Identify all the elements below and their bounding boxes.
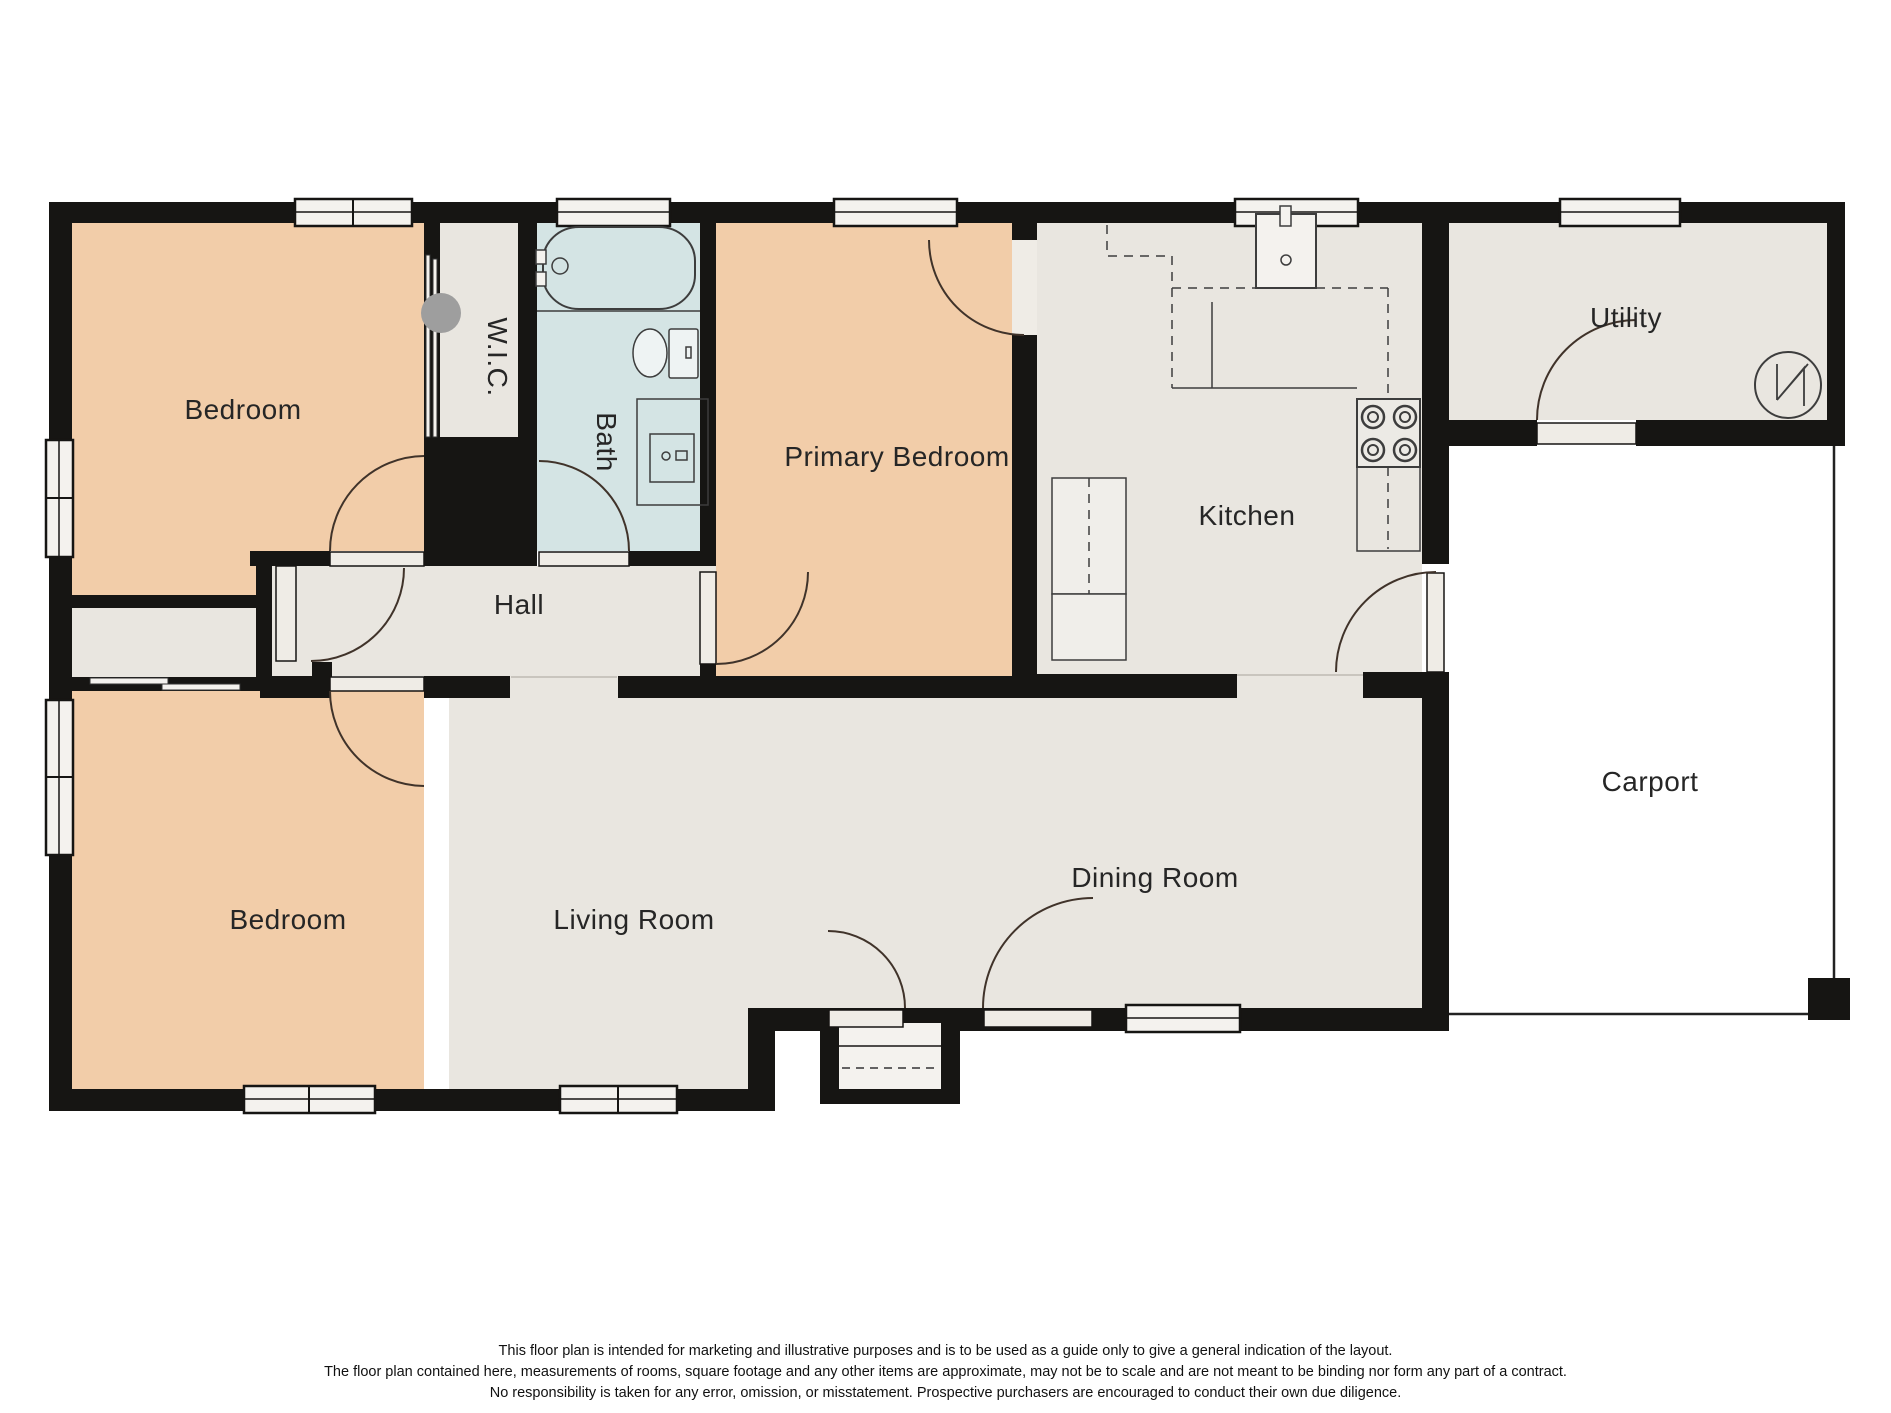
wall-mass-below-wic xyxy=(424,437,537,566)
bathtub-faucet-icon xyxy=(536,272,546,286)
room-label-kitchen: Kitchen xyxy=(1199,500,1296,532)
room-label-wic: W.I.C. xyxy=(481,317,513,396)
bedroom-bottom-door xyxy=(330,677,424,691)
wall-utility-bottom-a xyxy=(1427,420,1537,446)
wall-closet-right xyxy=(256,551,272,691)
room-label-living-room: Living Room xyxy=(553,904,714,936)
dining-room-exterior-door xyxy=(984,1010,1092,1027)
wall-utility-bottom-b xyxy=(1636,420,1845,446)
wall-primary-kitchen-top xyxy=(1012,202,1037,240)
bedroom-top-floor-ext xyxy=(72,551,260,595)
closet-sliding-door xyxy=(162,684,240,690)
window xyxy=(295,199,412,226)
floor-plan-drawing xyxy=(0,0,1891,1413)
window xyxy=(46,440,73,557)
wall-primary-kitchen xyxy=(1012,335,1037,698)
disclaimer-line-1: This floor plan is intended for marketin… xyxy=(0,1341,1891,1362)
wic-sliding-door xyxy=(426,255,430,437)
window xyxy=(244,1086,375,1113)
wall-primary-door-south xyxy=(700,664,716,698)
stove-icon xyxy=(1357,399,1420,467)
wall-bath-primary xyxy=(700,202,716,566)
room-label-bedroom-top: Bedroom xyxy=(184,394,301,426)
window xyxy=(557,199,670,226)
living-room-floor xyxy=(449,698,775,1089)
porch-closet-floor xyxy=(838,1022,942,1090)
primary-bedroom-door xyxy=(700,572,716,664)
bedroom-top-door xyxy=(330,552,424,566)
room-label-dining-room: Dining Room xyxy=(1071,862,1238,894)
wic-sliding-door xyxy=(433,259,437,437)
wall-kitchen-dining-a xyxy=(1037,674,1237,698)
wall-bedroom-closet xyxy=(49,595,260,608)
room-label-bedroom-bottom: Bedroom xyxy=(229,904,346,936)
wall-hall-bottom-a xyxy=(260,676,330,698)
living-room-exterior-door xyxy=(829,1010,903,1027)
primary-ne-door-opening xyxy=(1012,240,1037,335)
room-label-utility: Utility xyxy=(1590,302,1662,334)
disclaimer: This floor plan is intended for marketin… xyxy=(0,1341,1891,1404)
wall-hall-bottom-c xyxy=(618,676,1012,698)
wall-hall-top-a xyxy=(250,551,330,566)
window xyxy=(560,1086,677,1113)
disclaimer-line-2: The floor plan contained here, measureme… xyxy=(0,1362,1891,1383)
kitchen-carport-door xyxy=(1427,573,1444,672)
wic-door-dot-icon xyxy=(421,293,461,333)
wall-utility-right xyxy=(1827,202,1845,446)
disclaimer-line-3: No responsibility is taken for any error… xyxy=(0,1383,1891,1404)
bathtub-faucet-icon xyxy=(536,250,546,264)
utility-door xyxy=(1537,423,1636,444)
room-label-carport: Carport xyxy=(1602,766,1699,798)
hall-end-door xyxy=(276,566,296,661)
kitchen-sink-icon xyxy=(1256,206,1316,288)
floor-plan: Bedroom W.I.C. Bath Primary Bedroom Kitc… xyxy=(0,0,1891,1413)
carport-boundary xyxy=(1449,446,1850,1020)
room-label-primary-bedroom: Primary Bedroom xyxy=(784,441,1009,473)
window xyxy=(1560,199,1680,226)
hall-living-passage xyxy=(510,676,618,698)
bedroom-top-floor xyxy=(72,223,424,551)
dining-room-floor xyxy=(775,698,1422,1008)
room-label-hall: Hall xyxy=(494,589,544,621)
wall-dining-carport xyxy=(1422,694,1449,1031)
room-label-bath: Bath xyxy=(590,412,622,472)
window xyxy=(834,199,957,226)
water-heater-icon xyxy=(1755,352,1821,418)
bedroom-bottom-floor xyxy=(72,691,424,1089)
kitchen-cabinet xyxy=(1052,478,1126,660)
window xyxy=(1126,1005,1240,1032)
wall-bottom-step xyxy=(748,1008,775,1111)
wall-kitchen-right xyxy=(1422,202,1449,564)
wall-wic-right xyxy=(518,202,537,437)
hall-floor xyxy=(270,566,716,676)
closet-floor xyxy=(72,608,260,677)
wall-left xyxy=(49,202,72,1111)
closet-sliding-door xyxy=(90,678,168,684)
kitchen-dining-passage xyxy=(1237,674,1363,698)
wall-hall-bottom-b xyxy=(424,676,510,698)
bath-floor xyxy=(537,223,700,551)
carport-post-icon xyxy=(1808,978,1850,1020)
bath-door xyxy=(539,552,629,566)
window xyxy=(46,700,73,855)
